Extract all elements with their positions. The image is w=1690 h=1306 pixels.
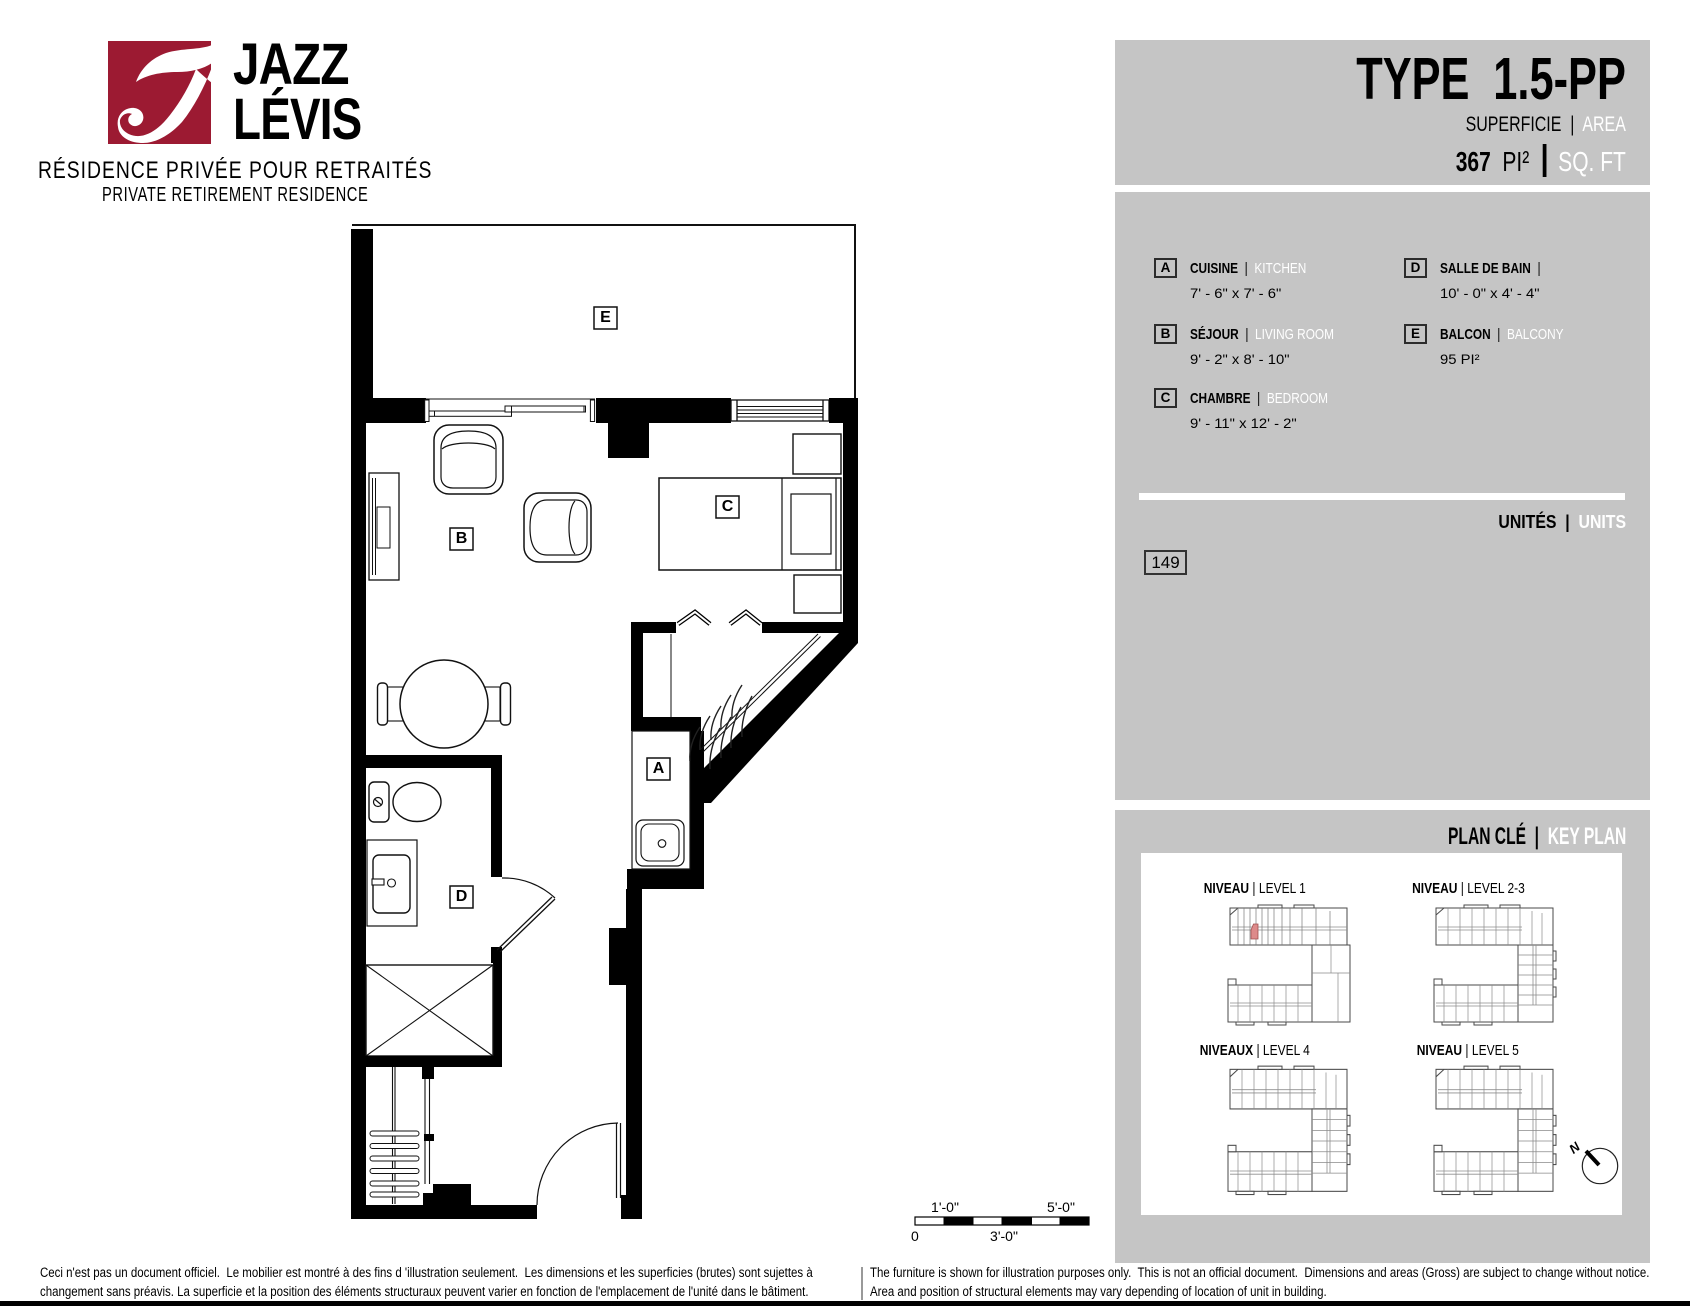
svg-text:N: N (1566, 1139, 1583, 1157)
